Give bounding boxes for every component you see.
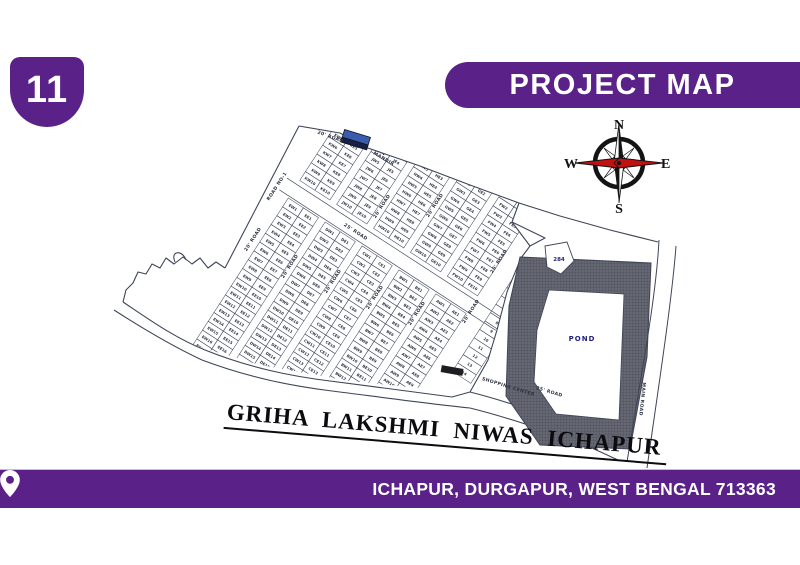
plot-label: KE6	[343, 151, 353, 160]
plot-cell	[351, 92, 372, 111]
plot-cell	[340, 110, 361, 129]
plot-label: DE6	[312, 281, 322, 290]
plot-label: CW12	[297, 347, 310, 358]
plot-label: BW12	[334, 371, 347, 382]
plot-label: BW8	[358, 336, 369, 346]
plot-label: KW3	[345, 114, 356, 124]
plot-cell	[333, 444, 354, 463]
plot-label: BE9	[368, 355, 378, 364]
plot-label: BW4	[381, 301, 392, 311]
plot-label: 12	[472, 353, 479, 360]
plot-label: GE8	[443, 241, 453, 250]
plot-label: 10	[483, 336, 490, 343]
road-label: 20' ROAD	[461, 298, 481, 324]
plot-label: JW9	[347, 191, 358, 200]
plot-label: KE9	[326, 178, 336, 187]
plot-label: DW14	[249, 340, 263, 351]
plot-label: JE1	[409, 131, 418, 140]
plot-label: EW14	[212, 316, 225, 327]
plot-label: HE5	[423, 190, 433, 199]
plot-label: BW1	[398, 275, 409, 285]
plot-label: KW1	[356, 97, 367, 107]
plot-label: EW8	[248, 264, 259, 274]
plot-label: FE4	[503, 229, 513, 238]
plot-label: JE2	[403, 140, 412, 149]
boundary-blob	[174, 253, 186, 262]
plot-label: AW17	[343, 439, 356, 450]
plot-cell	[243, 373, 264, 392]
plot-label: AE8	[411, 370, 421, 379]
plot-label: KE1	[372, 107, 382, 116]
plot-cell	[377, 134, 398, 153]
plot-label: CE14	[302, 375, 314, 385]
plot-label: EE5	[281, 248, 291, 257]
plot-label: DW13	[255, 331, 269, 342]
plot-cell	[354, 445, 375, 464]
plot-label: DE3	[329, 254, 339, 263]
mandir-marker-icon	[341, 130, 371, 150]
plot-label: CW17	[269, 391, 282, 402]
plot-label: GE6	[454, 223, 464, 232]
plot-label: EW5	[265, 238, 276, 248]
compass-east-label: E	[661, 157, 670, 172]
plot-label: DW11	[266, 314, 280, 325]
plot-label: AE18	[353, 458, 365, 468]
plot-label: BW9	[353, 345, 364, 355]
plot-label: AE1	[451, 309, 461, 318]
plot-label: DW12	[260, 323, 274, 334]
plot-label: DE17	[248, 377, 260, 387]
plot-label: HE6	[417, 199, 427, 208]
plot-label: BE8	[374, 346, 384, 355]
plot-label: FE8	[480, 265, 490, 274]
plot-label: EW9	[242, 273, 253, 283]
plot-label: KW10	[304, 175, 317, 186]
plot-cell	[397, 135, 418, 154]
plot-label: KW2	[350, 106, 361, 116]
plot-label: BE14	[339, 398, 351, 408]
pond: POND	[506, 257, 651, 449]
plot-label: AE17	[358, 449, 370, 459]
plot-label: DW18	[226, 375, 240, 386]
plot-label: AE2	[445, 317, 455, 326]
plot-cell	[403, 126, 424, 145]
plot-label: HE1	[446, 155, 456, 164]
plot-cell	[237, 381, 258, 400]
plot-label: JE7	[374, 184, 383, 193]
plot-label: GE7	[448, 232, 458, 241]
plot-cell	[419, 149, 440, 168]
plot-label: AE11	[393, 396, 405, 406]
plot-label: KE3	[360, 125, 370, 134]
upper-right-parcel-line	[519, 203, 658, 242]
plot-label: CE6	[349, 305, 359, 314]
compass-rose-icon: N S W E	[564, 118, 670, 217]
location-pin-icon	[0, 470, 20, 497]
plot-label: DE5	[317, 272, 327, 281]
plot-label: HW2	[424, 154, 435, 164]
plot-label: EW3	[276, 220, 287, 230]
pond-water	[534, 290, 624, 420]
plot-label: JE9	[363, 201, 372, 210]
plot-label: EE7	[269, 266, 279, 275]
plot-label: 9	[489, 328, 494, 334]
plot-label: CE9	[331, 331, 341, 340]
plot-label: FW10	[451, 271, 464, 282]
plot-label: JW6	[364, 165, 375, 174]
plot-label: CW6	[333, 295, 344, 305]
plot-cell	[291, 379, 312, 398]
plot-label: DE2	[334, 246, 344, 255]
plot-label: EE8	[263, 275, 273, 284]
plot-label: BW10	[346, 353, 359, 364]
plot-cell	[388, 116, 409, 135]
plot-label: FE5	[497, 238, 507, 247]
plot-label: AW5	[412, 334, 423, 344]
plot-label: EE6	[275, 257, 285, 266]
plot-label: JW3	[381, 138, 392, 147]
plot-label: CE4	[360, 287, 370, 296]
plot-label: CW1	[361, 251, 372, 261]
plot-label: CW4	[344, 277, 355, 287]
plot-label: EW11	[229, 290, 242, 301]
plot-label: AW4	[418, 325, 429, 335]
plot-label: EW4	[271, 229, 282, 239]
plot-label: DE8	[300, 298, 310, 307]
plot-cell	[388, 392, 409, 411]
plot-label: BW7	[364, 327, 375, 337]
plot-label: AW10	[383, 377, 396, 388]
plot-label: BW6	[370, 319, 381, 329]
plot-label: EW6	[259, 247, 270, 257]
plot-label: DE18	[242, 386, 254, 396]
plot-cell	[440, 150, 461, 169]
plot-label: GE4	[465, 205, 475, 214]
plot-label: CW11	[303, 338, 316, 349]
pond-label: POND	[569, 335, 596, 343]
plot-label: AW3	[424, 316, 435, 326]
plot-label: BE13	[344, 390, 356, 400]
plot-label: BW11	[340, 362, 353, 373]
plot-label: EW2	[282, 211, 293, 221]
plot-label: BE7	[380, 338, 390, 347]
plot-label: FW3	[492, 210, 503, 220]
plot-label: EE2	[298, 222, 308, 231]
plot-label: EW1	[288, 203, 299, 213]
plot-label: CW2	[356, 259, 367, 269]
plot-label: HW1	[430, 145, 441, 155]
plot-label: BE2	[408, 294, 418, 303]
plot-label: CE16	[290, 392, 302, 402]
plot-label: GW10	[414, 247, 428, 258]
plot-label: BE6	[385, 329, 395, 338]
plot-label: EW7	[253, 255, 264, 265]
plot-label: AE6	[422, 353, 432, 362]
plot-label: KE8	[332, 169, 342, 178]
plot-label: AE9	[405, 379, 415, 388]
compass-north-label: N	[614, 118, 624, 133]
compass-south-label: S	[615, 202, 623, 217]
plot-label: DW15	[243, 349, 257, 360]
plot-label: CE2	[371, 270, 381, 279]
plot-label: BE1	[414, 285, 424, 294]
plot-cell	[366, 102, 387, 121]
plot-label: CW13	[292, 355, 305, 366]
plot-label: AW9	[389, 369, 400, 379]
plot-label: GE9	[437, 249, 447, 258]
plot-label: DE9	[294, 307, 304, 316]
plot-label: FW8	[464, 254, 475, 264]
plot-label: EE1	[303, 213, 313, 222]
plot-label: CW8	[321, 312, 332, 322]
plot-label: JW8	[353, 182, 364, 191]
plot-label: CW10	[309, 329, 322, 340]
plot-label: EE4	[286, 239, 296, 248]
plot-label: JW1	[393, 121, 404, 130]
plot-label: AW18	[337, 447, 350, 458]
plot-label: AE10	[398, 387, 410, 397]
plot-cell	[382, 125, 403, 144]
plot-label: HE4	[428, 181, 438, 190]
plot-label: HW10	[377, 223, 391, 234]
plot-label: JW2	[387, 130, 398, 139]
plot-label: BE12	[350, 381, 362, 391]
plot-label: 11	[477, 344, 484, 351]
plot-label: HE9	[400, 225, 410, 234]
plot-cell	[345, 101, 366, 120]
plot-label: GE3	[471, 197, 481, 206]
plot-label: GE1	[483, 179, 493, 188]
footer-banner: ICHAPUR, DURGAPUR, WEST BENGAL 713363	[0, 469, 800, 508]
plot-label: DW10	[272, 305, 286, 316]
plot-label: EW15	[207, 325, 220, 336]
plot-label: GW1	[467, 169, 478, 179]
plot-label: EW16	[201, 334, 214, 345]
boundary-wavy-edge	[123, 257, 225, 302]
plot-label: CE3	[366, 278, 376, 287]
plot-label: CE15	[296, 383, 308, 393]
plot-label: AE7	[417, 361, 427, 370]
plot-cell	[425, 140, 446, 159]
plot-label: DE7	[306, 290, 316, 299]
plot-label: DE1	[340, 237, 350, 246]
plot-284-label: 284	[553, 257, 565, 263]
plot-label: KE7	[338, 160, 348, 169]
plot-label: FW4	[487, 219, 498, 229]
plot-label: EW10	[235, 281, 248, 292]
plot-label: FE6	[491, 247, 501, 256]
plot-cell	[462, 164, 483, 183]
plot-label: FE9	[474, 274, 484, 283]
plot-label: CW3	[350, 268, 361, 278]
plot-cell	[222, 372, 243, 391]
plot-label: BW5	[375, 310, 386, 320]
plot-label: JW10	[340, 199, 353, 210]
plot-label: AW6	[407, 342, 418, 352]
plot-label: JE8	[369, 193, 378, 202]
plot-label: CE1	[377, 261, 387, 270]
plot-label: JE3	[397, 149, 406, 158]
plot-label: GE5	[460, 214, 470, 223]
plot-label: HE2	[440, 164, 450, 173]
plot-label: 13	[466, 361, 473, 368]
plot-label: EE3	[292, 231, 302, 240]
plot-label: BE5	[391, 320, 401, 329]
plot-label: FW7	[470, 246, 481, 256]
plot-label: JE6	[380, 175, 389, 184]
plot-label: EW12	[224, 299, 237, 310]
plot-label: CE7	[343, 314, 353, 323]
plot-cell	[319, 384, 340, 403]
slide-background: 11 PROJECT MAP KW1KE1KW2KE2KW3KE3KW4KE4K…	[0, 0, 800, 565]
plot-cell	[367, 391, 388, 410]
plot-label: FE7	[485, 256, 495, 265]
plot-label: AW7	[401, 351, 412, 361]
plot-label: AE4	[434, 335, 444, 344]
plot-label: CW9	[316, 321, 327, 331]
plot-label: DE4	[323, 263, 333, 272]
plot-label: HE7	[411, 208, 421, 217]
plot-label: CW5	[339, 286, 350, 296]
plot-label: JE5	[386, 166, 395, 175]
plot-label: AE3	[439, 326, 449, 335]
plot-label: CW7	[327, 303, 338, 313]
plot-label: FW2	[498, 202, 509, 212]
compass-west-label: W	[564, 157, 578, 172]
plot-label: AW2	[429, 307, 440, 317]
plot-label: FW5	[481, 228, 492, 238]
plot-cell	[361, 111, 382, 130]
plot-label: AW8	[395, 360, 406, 370]
road-label: ROAD NO-1	[266, 171, 289, 202]
plot-label: FW9	[458, 263, 469, 273]
plot-label: AE5	[428, 344, 438, 353]
plot-label: BW2	[393, 283, 404, 293]
plot-label: BE3	[403, 302, 413, 311]
location-text: ICHAPUR, DURGAPUR, WEST BENGAL 713363	[372, 479, 776, 500]
plot-label: EE9	[258, 283, 268, 292]
plot-label: HE8	[406, 217, 416, 226]
plot-label: BW3	[387, 292, 398, 302]
plot-label: AE16	[364, 440, 376, 450]
plot-label: EW13	[218, 308, 231, 319]
shopping-center-block	[441, 365, 464, 376]
plot-label: CE8	[337, 322, 347, 331]
plot-label: CE5	[354, 296, 364, 305]
plot-label: BE4	[397, 311, 407, 320]
plot-label: FW6	[475, 237, 486, 247]
plot-label: HE3	[434, 173, 444, 182]
plot-label: KE2	[366, 116, 376, 125]
plot-label: AW1	[435, 298, 446, 308]
plot-label: JW7	[359, 174, 370, 183]
